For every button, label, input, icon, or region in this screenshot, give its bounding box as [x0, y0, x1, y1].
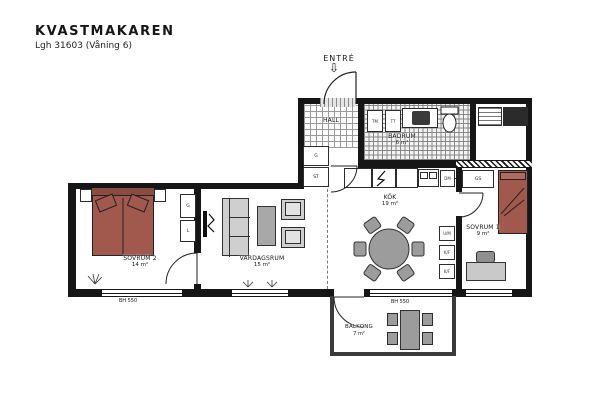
closet-label: L: [187, 229, 190, 234]
sill-height-label: BH 550: [382, 299, 418, 305]
tv-outlet-zigzag: [208, 214, 214, 232]
appliance-label: K/F: [444, 250, 450, 255]
shelf-unit: [478, 107, 502, 126]
wall: [358, 160, 456, 168]
room-area: 15 m²: [222, 262, 302, 269]
wall: [68, 183, 76, 297]
window: [232, 289, 288, 297]
wardrobe-l: L: [180, 220, 196, 242]
room-label-sovrum1: SOVRUM 1 9 m²: [460, 224, 506, 238]
sliding-wardrobe-gs: GS: [462, 170, 494, 188]
room-area: 7 m²: [336, 331, 382, 337]
oven-microwave-unit: U/M: [439, 226, 455, 241]
balcony-chair: [422, 332, 433, 345]
armchair-cushion: [285, 202, 301, 216]
coffee-table: [257, 206, 276, 246]
hall-closet-g: G: [303, 146, 329, 166]
wall: [194, 284, 201, 297]
page-title: KVASTMAKAREN: [35, 24, 175, 39]
bed-pillow: [500, 172, 526, 180]
wall: [512, 289, 532, 297]
sovrum1-door-arc: [459, 193, 483, 217]
wall: [358, 104, 364, 162]
window: [370, 289, 452, 297]
bathroom-sink: [412, 111, 430, 125]
room-area: 6 m²: [376, 140, 428, 147]
wardrobe-g: G: [180, 194, 196, 218]
closet-label: ST: [313, 175, 319, 180]
shaft: [503, 107, 528, 126]
floor-plan: KVASTMAKAREN Lgh 31603 (Våning 6) ENTRÉ …: [0, 0, 600, 400]
tv-unit: [203, 211, 207, 237]
appliance-label: TT: [391, 119, 396, 124]
sofa: [222, 198, 249, 256]
sofa-seam: [229, 217, 250, 218]
closet-label: G: [186, 204, 190, 209]
sink-basin: [429, 172, 437, 179]
room-name: HALL: [304, 117, 358, 124]
balcony-chair: [387, 313, 398, 326]
wall: [68, 289, 102, 297]
appliance-label: DM: [444, 176, 451, 181]
balcony-table: [400, 310, 420, 350]
room-label-vardagsrum: VARDAGSRUM 15 m²: [222, 255, 302, 269]
hall-floor: [304, 104, 358, 148]
window: [466, 289, 512, 297]
sill-height-label: BH 550: [108, 298, 148, 304]
fridge-freezer-unit: K/F: [439, 245, 455, 260]
entry-arrow-icon: ⇩: [329, 61, 339, 75]
window: [102, 289, 182, 297]
balcony-chair: [422, 313, 433, 326]
plant-icon: [88, 274, 277, 287]
balcony-wall: [330, 352, 456, 356]
closet-label: G: [314, 154, 318, 159]
armchair-cushion: [285, 230, 301, 244]
wall: [470, 104, 476, 160]
room-label-kok: KÖK 19 m²: [372, 194, 408, 208]
nightstand: [80, 189, 92, 202]
room-label-hall: HALL: [304, 117, 358, 124]
room-area: 19 m²: [372, 201, 408, 208]
room-area: 9 m²: [460, 231, 506, 238]
wall: [182, 289, 232, 297]
balcony-wall: [452, 296, 456, 356]
sink-basin: [420, 172, 428, 179]
sofa-seam: [229, 236, 250, 237]
closet-label: GS: [475, 177, 481, 182]
balcony-door-arc: [334, 297, 364, 327]
nightstand: [154, 189, 166, 202]
room-label-badrum: BADRUM 6 m²: [376, 133, 428, 147]
stove: [372, 168, 396, 188]
wall: [356, 98, 532, 104]
balcony-chair: [387, 332, 398, 345]
wall: [288, 289, 334, 297]
hall-closet-st: ST: [303, 167, 329, 187]
double-bed: [92, 188, 154, 256]
room-name: BALKONG: [336, 324, 382, 331]
room-label-sovrum2: SOVRUM 2 14 m²: [98, 255, 182, 269]
fridge-freezer-unit: K/F: [439, 264, 455, 279]
room-label-balkong: BALKONG 7 m²: [336, 324, 382, 337]
dining-set: [354, 216, 424, 281]
appliance-label: TM: [372, 119, 378, 124]
bed-headboard: [92, 188, 154, 196]
washing-machine: TM: [367, 110, 383, 132]
wall-hatched: [456, 160, 532, 168]
balcony-wall: [330, 296, 334, 354]
open-plan-boundary-line: [327, 189, 328, 289]
sofa-seam: [229, 199, 230, 257]
appliance-label: U/M: [443, 231, 451, 236]
kitchen-cabinet: [396, 168, 418, 188]
dryer: TT: [385, 110, 401, 132]
room-area: 14 m²: [98, 262, 182, 269]
appliance-label: K/F: [444, 269, 450, 274]
desk: [466, 262, 506, 281]
kitchen-cabinet: [344, 168, 372, 188]
dishwasher: DM: [440, 170, 455, 187]
apartment-subtitle: Lgh 31603 (Våning 6): [35, 41, 132, 51]
entry-threshold: [320, 98, 356, 107]
